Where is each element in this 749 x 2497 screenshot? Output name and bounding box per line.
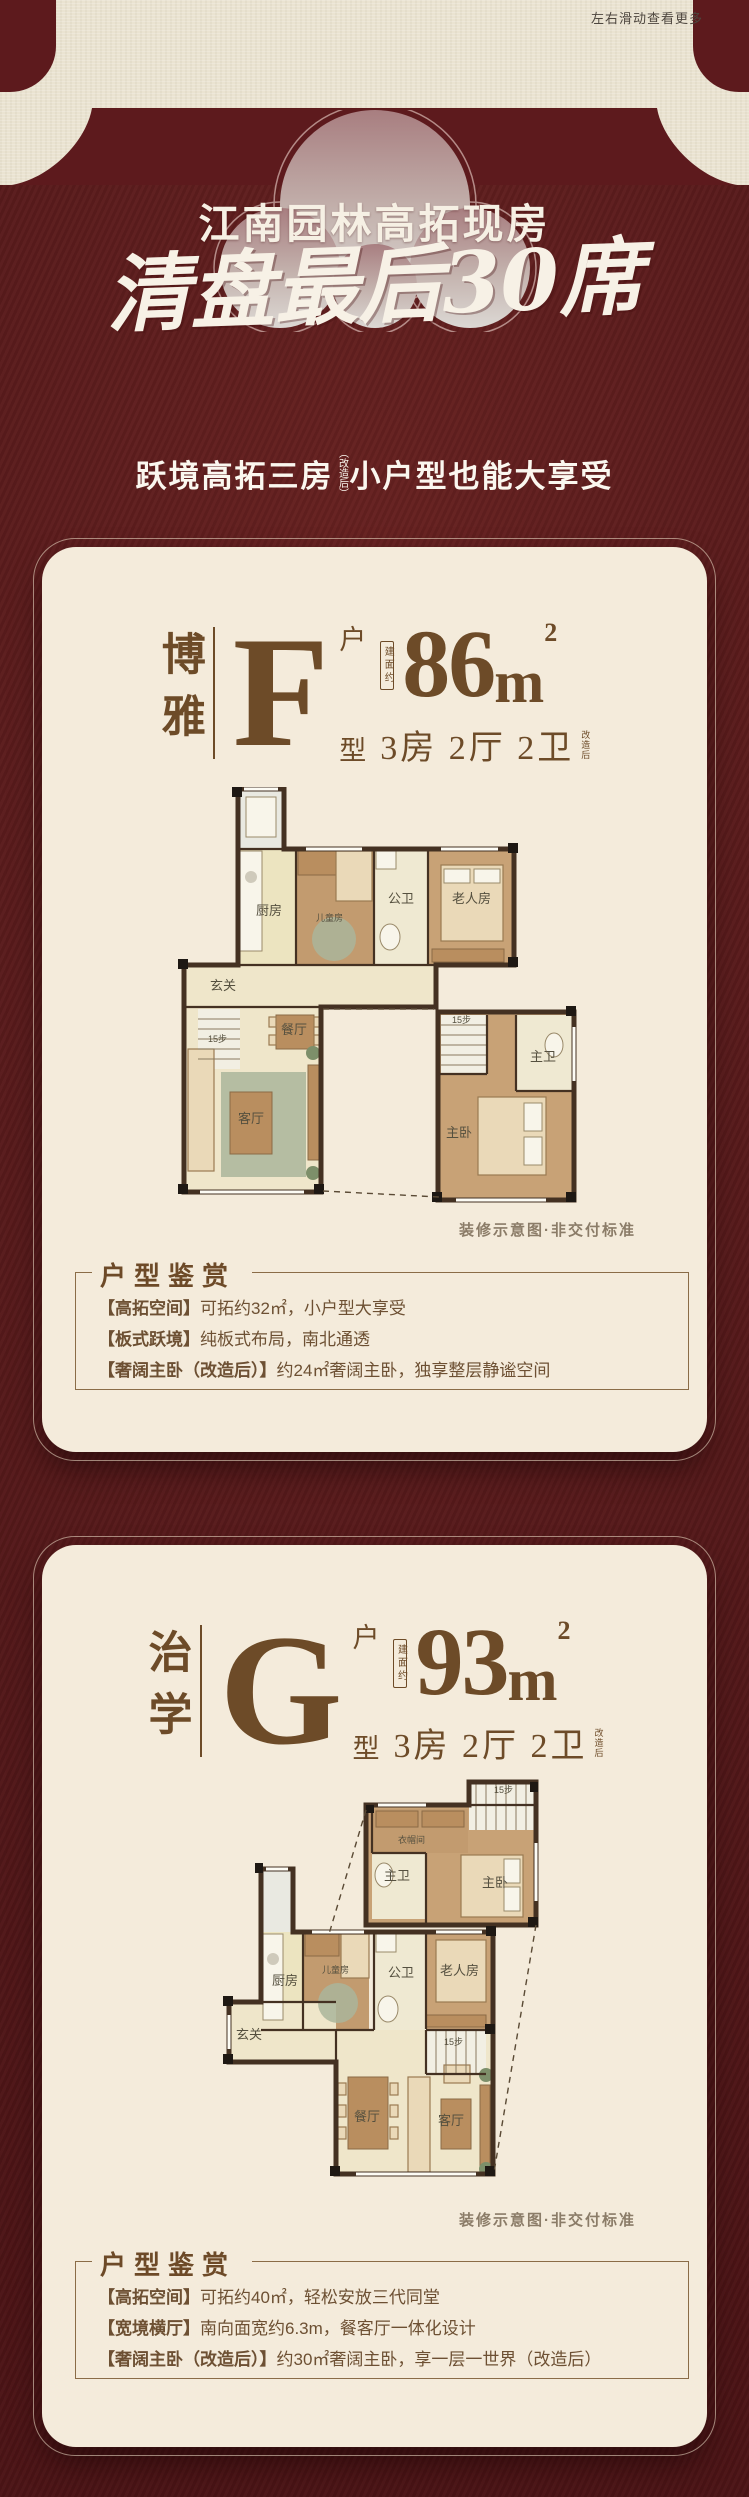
item-tag: 【板式跃境】 <box>98 1330 200 1349</box>
item-tag: 【高拓空间】 <box>98 1299 200 1318</box>
appreciation-title: 户型鉴赏 <box>92 1256 252 1293</box>
room-label-elder: 老人房 <box>440 1963 479 1978</box>
layout-small-note: 改造后 <box>579 730 592 760</box>
unit-card-g: 治学 G 户 型 建面约 93 m 2 3房 2厅 2卫 改造后 <box>42 1545 707 2447</box>
series-name: 博雅 <box>157 631 201 755</box>
appreciation-item: 【宽境横厅】南向面宽约6.3m，餐客厅一体化设计 <box>98 2313 688 2344</box>
item-tag: 【奢阔主卧（改造后）】 <box>98 2350 277 2369</box>
floorplan-f: 厨房 儿童房 公卫 老人房 玄关 餐厅 客厅 主卫 主卧 15步 15步 <box>126 787 626 1227</box>
area-note-seal: 建面约 <box>393 1639 407 1688</box>
left-corner-ornament <box>0 0 56 92</box>
unit-header-g: 治学 G 户 型 建面约 93 m 2 3房 2厅 2卫 改造后 <box>42 1603 707 1778</box>
room-label-master-bed: 主卧 <box>482 1875 508 1890</box>
appreciation-item: 【高拓空间】可拓约40㎡，轻松安放三代同堂 <box>98 2282 688 2313</box>
item-tag: 【奢阔主卧（改造后）】 <box>98 1361 277 1380</box>
stairs-label-suite: 15步 <box>452 1015 471 1025</box>
area-superscript: 2 <box>544 620 557 646</box>
unit-type-chars: 户 型 <box>339 618 366 768</box>
appreciation-item: 【奢阔主卧（改造后）】约30㎡奢阔主卧，享一层一世界（改造后） <box>98 2344 688 2375</box>
room-label-master-bath: 主卫 <box>530 1049 556 1064</box>
item-text: 约30㎡奢阔主卧，享一层一世界（改造后） <box>277 2350 602 2369</box>
layout-small-note: 改造后 <box>592 1728 605 1758</box>
floorplan-f-container: 厨房 儿童房 公卫 老人房 玄关 餐厅 客厅 主卫 主卧 15步 15步 装修示… <box>114 787 654 1242</box>
layout-line: 3房 2厅 2卫 改造后 <box>380 720 592 769</box>
unit-card-f: 博雅 F 户 型 建面约 86 m 2 3房 2厅 2卫 改造后 <box>42 547 707 1452</box>
area-value: 86 <box>402 616 494 712</box>
unit-type-chars: 户 型 <box>352 1616 379 1766</box>
stairs-label-suite: 15步 <box>494 1785 513 1795</box>
appreciation-item: 【奢阔主卧（改造后）】约24㎡奢阔主卧，独享整层静谧空间 <box>98 1355 688 1386</box>
room-label-elder: 老人房 <box>452 891 491 906</box>
area-group: 建面约 93 m 2 <box>393 1614 605 1710</box>
area-note-seal: 建面约 <box>380 641 394 690</box>
plan-caption: 装修示意图·非交付标准 <box>459 1219 636 1240</box>
room-label-dining: 餐厅 <box>354 2109 380 2124</box>
item-text: 可拓约32㎡，小户型大享受 <box>200 1299 406 1318</box>
room-label-foyer: 玄关 <box>236 2027 262 2042</box>
item-tag: 【高拓空间】 <box>98 2288 200 2307</box>
unit-type-letter: G <box>220 1621 343 1760</box>
poster-page[interactable]: 左右滑动查看更多 江南园林高拓现房 清盘最后30席 跃境高拓三房 （改造后） 小… <box>0 0 749 2497</box>
item-text: 约24㎡奢阔主卧，独享整层静谧空间 <box>277 1361 551 1380</box>
unit-type-letter: F <box>233 623 330 762</box>
subtitle-small-note: （改造后） <box>337 448 347 498</box>
room-label-master-bed: 主卧 <box>446 1125 472 1140</box>
area-unit: m <box>507 1650 557 1710</box>
layout-text: 3房 2厅 2卫 <box>380 720 574 769</box>
room-label-living: 客厅 <box>438 2113 464 2128</box>
area-superscript: 2 <box>557 1618 570 1644</box>
subtitle-left: 跃境高拓三房 <box>136 451 334 496</box>
stairs-label-main: 15步 <box>444 2037 463 2047</box>
vertical-divider <box>213 627 215 759</box>
appreciation-box-f: 户型鉴赏 【高拓空间】可拓约32㎡，小户型大享受 【板式跃境】纯板式布局，南北通… <box>75 1272 689 1390</box>
item-text: 可拓约40㎡，轻松安放三代同堂 <box>200 2288 440 2307</box>
char-hu: 户 <box>339 618 366 657</box>
hero-subtitle: 跃境高拓三房 （改造后） 小户型也能大享受 <box>0 448 749 498</box>
floorplan-g-container: 衣帽间 主卫 主卧 15步 厨房 儿童房 公卫 老人房 玄关 餐厅 客厅 15步… <box>114 1777 654 2232</box>
appreciation-title: 户型鉴赏 <box>92 2245 252 2282</box>
room-label-foyer: 玄关 <box>210 978 236 993</box>
plan-caption: 装修示意图·非交付标准 <box>459 2209 636 2230</box>
item-text: 南向面宽约6.3m，餐客厅一体化设计 <box>200 2319 476 2338</box>
item-text: 纯板式布局，南北通透 <box>200 1330 370 1349</box>
room-label-living: 客厅 <box>238 1111 264 1126</box>
room-label-kids: 儿童房 <box>322 1964 349 1975</box>
area-group: 建面约 86 m 2 <box>380 616 592 712</box>
swipe-hint-text: 左右滑动查看更多 <box>591 8 703 27</box>
room-label-kids: 儿童房 <box>316 912 343 923</box>
unit-header-f: 博雅 F 户 型 建面约 86 m 2 3房 2厅 2卫 改造后 <box>42 605 707 780</box>
room-label-kitchen: 厨房 <box>256 903 282 918</box>
area-value: 93 <box>415 1614 507 1710</box>
floorplan-g: 衣帽间 主卫 主卧 15步 厨房 儿童房 公卫 老人房 玄关 餐厅 客厅 15步 <box>126 1777 626 2217</box>
room-label-guest-bath: 公卫 <box>388 891 414 906</box>
room-label-dining: 餐厅 <box>281 1022 307 1037</box>
vertical-divider <box>200 1625 202 1757</box>
char-xing: 型 <box>352 1727 379 1766</box>
series-name: 治学 <box>144 1629 188 1753</box>
appreciation-box-g: 户型鉴赏 【高拓空间】可拓约40㎡，轻松安放三代同堂 【宽境横厅】南向面宽约6.… <box>75 2261 689 2379</box>
stairs-label-main: 15步 <box>208 1034 227 1044</box>
room-label-kitchen: 厨房 <box>272 1973 298 1988</box>
char-hu: 户 <box>352 1616 379 1655</box>
room-label-guest-bath: 公卫 <box>388 1965 414 1980</box>
layout-line: 3房 2厅 2卫 改造后 <box>393 1718 605 1767</box>
appreciation-item: 【高拓空间】可拓约32㎡，小户型大享受 <box>98 1293 688 1324</box>
layout-text: 3房 2厅 2卫 <box>393 1718 587 1767</box>
appreciation-item: 【板式跃境】纯板式布局，南北通透 <box>98 1324 688 1355</box>
subtitle-right: 小户型也能大享受 <box>350 451 614 496</box>
char-xing: 型 <box>339 729 366 768</box>
room-label-cloak: 衣帽间 <box>398 1834 425 1845</box>
area-unit: m <box>494 652 544 712</box>
room-label-master-bath: 主卫 <box>384 1868 410 1883</box>
item-tag: 【宽境横厅】 <box>98 2319 200 2338</box>
